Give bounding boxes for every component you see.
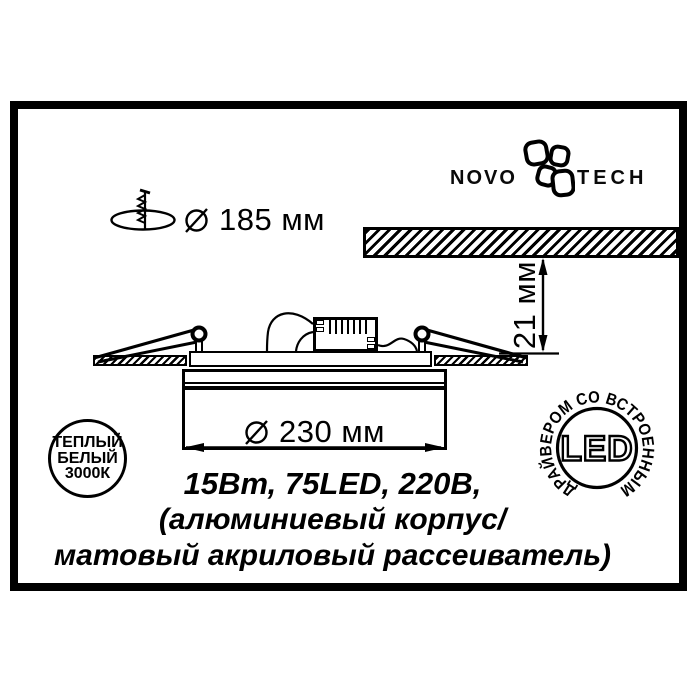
- brand-logo-text-right: TECH: [577, 167, 647, 190]
- fixture-top-plate: [189, 351, 432, 367]
- led-driver-box: [313, 317, 378, 352]
- overall-dimension: 230 мм: [182, 414, 447, 450]
- driver-terminal: [316, 327, 324, 332]
- diameter-icon: [244, 418, 270, 446]
- driver-terminal: [367, 344, 375, 349]
- driver-terminal: [316, 320, 324, 325]
- led-driver-badge: LED ДРАЙВЕРОМ СО ВСТРОЕННЫМ: [532, 383, 662, 513]
- diameter-icon: [184, 206, 210, 234]
- spec-line-diffuser: матовый акриловый рассеиватель): [10, 538, 655, 574]
- novotech-flower-icon: [523, 139, 575, 205]
- cutout-dimension: 185 мм: [184, 202, 325, 238]
- warm-white-line2: БЕЛЫЙ: [57, 451, 118, 467]
- warm-white-line3: 3000К: [65, 466, 110, 482]
- warm-white-line1: ТЕПЛЫЙ: [52, 435, 122, 451]
- ceiling-flange-left: [93, 355, 187, 366]
- driver-terminal: [367, 337, 375, 342]
- cutout-dimension-label: 185 мм: [219, 202, 325, 238]
- brand-logo-text-left: NOVO: [450, 167, 517, 190]
- brand-logo: NOVO TECH: [450, 138, 670, 208]
- overall-dimension-label: 230 мм: [279, 414, 385, 450]
- led-badge-label: LED: [561, 430, 634, 469]
- driver-vents-icon: [329, 320, 367, 334]
- trim-ring-line: [185, 382, 444, 384]
- warm-white-badge: ТЕПЛЫЙ БЕЛЫЙ 3000К: [48, 419, 127, 498]
- depth-dimension-label: 21 мм: [507, 250, 541, 360]
- trim-ring-edge: [185, 386, 444, 390]
- diagram-page: 185 мм 230 мм 21 мм NOVO TECH 15Вт, 75LE…: [0, 0, 700, 700]
